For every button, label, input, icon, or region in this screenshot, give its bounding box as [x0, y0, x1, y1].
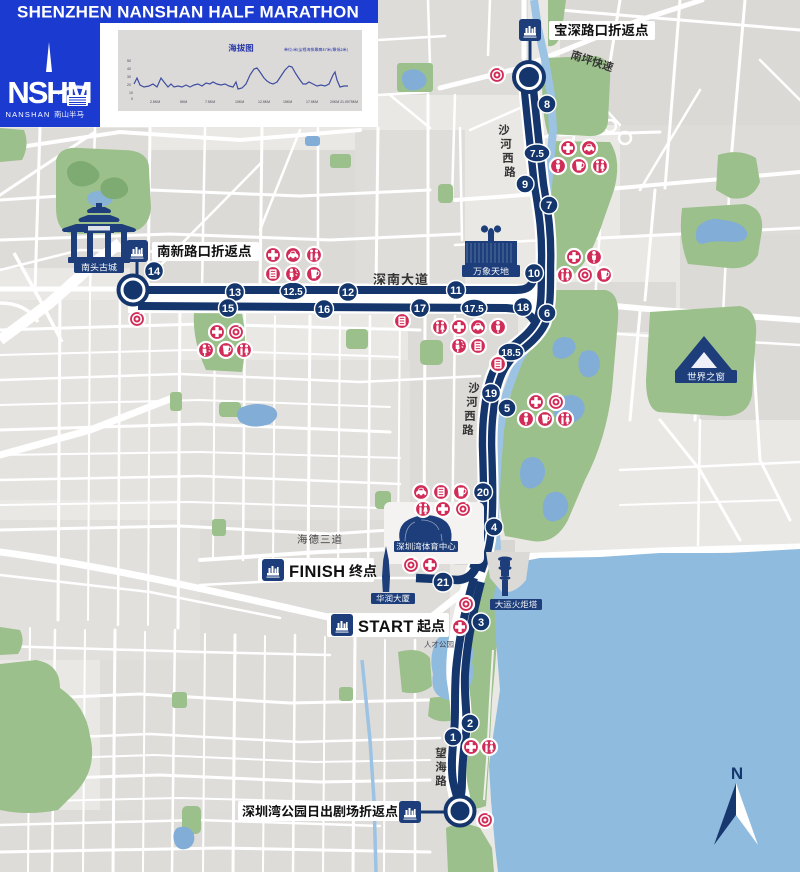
svg-text:NANSHAN: NANSHAN: [5, 110, 50, 119]
svg-text:8: 8: [544, 99, 550, 111]
svg-text:19: 19: [485, 388, 497, 400]
svg-text:20KM 21.0975KM: 20KM 21.0975KM: [330, 100, 358, 104]
svg-text:10KM: 10KM: [235, 100, 244, 104]
svg-text:6: 6: [544, 308, 550, 320]
svg-text:50: 50: [127, 59, 131, 63]
svg-text:SHENZHEN NANSHAN HALF MARATHON: SHENZHEN NANSHAN HALF MARATHON: [17, 3, 359, 22]
svg-text:2.5KM: 2.5KM: [150, 100, 160, 104]
svg-text:N: N: [731, 764, 743, 783]
svg-text:10: 10: [129, 91, 133, 95]
svg-text:12.5KM: 12.5KM: [258, 100, 270, 104]
svg-text:40: 40: [127, 67, 131, 71]
svg-text:1: 1: [450, 732, 456, 744]
svg-text:START: START: [358, 618, 414, 636]
svg-text:9: 9: [522, 179, 528, 191]
svg-text:30: 30: [127, 75, 131, 79]
svg-text:3: 3: [478, 617, 484, 629]
svg-text:0: 0: [131, 97, 133, 101]
svg-text:FINISH: FINISH: [289, 563, 345, 581]
svg-text:7: 7: [546, 200, 552, 212]
svg-text:18: 18: [517, 302, 529, 314]
svg-text:5: 5: [504, 403, 510, 415]
svg-text:7.5: 7.5: [530, 149, 544, 160]
svg-text:7.5KM: 7.5KM: [205, 100, 215, 104]
svg-text:15KM: 15KM: [283, 100, 292, 104]
svg-text:12: 12: [342, 287, 354, 299]
svg-text:17: 17: [414, 303, 426, 315]
svg-text:16: 16: [318, 304, 330, 316]
svg-text:15: 15: [222, 303, 234, 315]
svg-text:20: 20: [127, 83, 131, 87]
svg-text:13: 13: [229, 287, 241, 299]
svg-text:17.5KM: 17.5KM: [306, 100, 318, 104]
svg-text:5KM: 5KM: [180, 100, 187, 104]
svg-text:14: 14: [148, 266, 161, 278]
svg-text:10: 10: [528, 268, 540, 280]
svg-text:2: 2: [467, 718, 473, 730]
svg-text:20: 20: [477, 487, 489, 499]
svg-text:11: 11: [450, 285, 462, 297]
svg-text:4: 4: [491, 522, 498, 534]
svg-text:18.5: 18.5: [501, 348, 521, 359]
svg-text:21: 21: [437, 577, 449, 589]
svg-text:17.5: 17.5: [464, 304, 484, 315]
svg-text:12.5: 12.5: [283, 287, 303, 298]
